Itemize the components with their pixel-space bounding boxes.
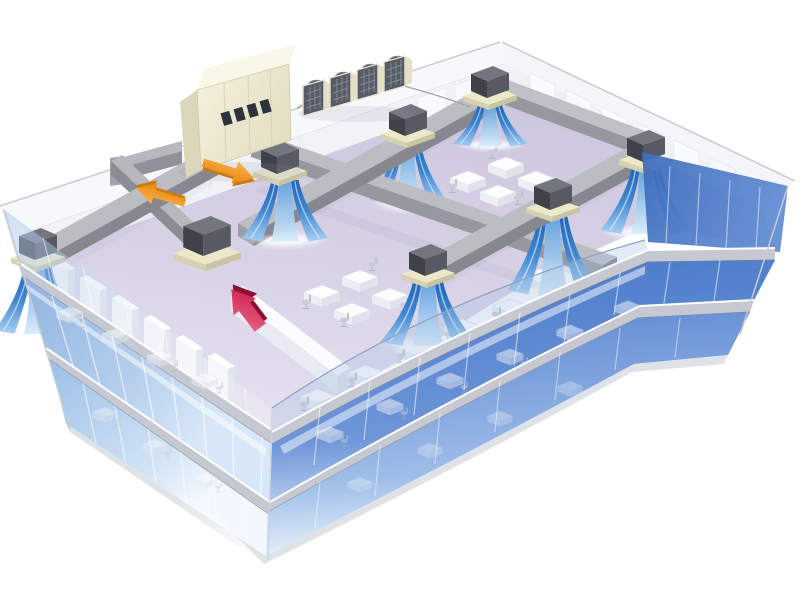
hvac-building-illustration: [0, 0, 800, 600]
illustration-canvas: [0, 0, 800, 600]
